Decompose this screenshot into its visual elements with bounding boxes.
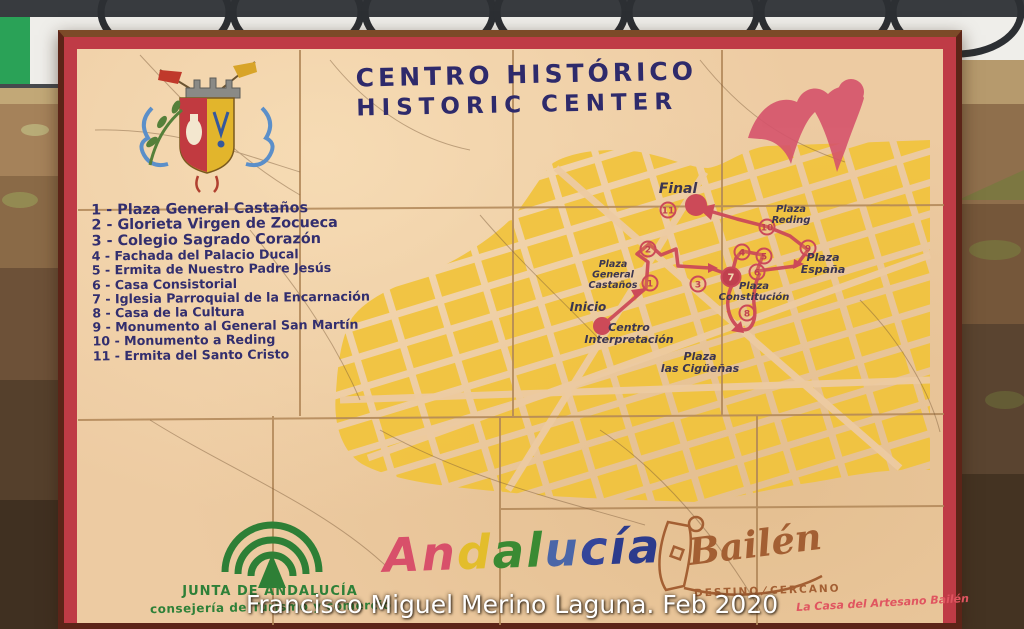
andalucia-letter: í [609,520,629,576]
legend-list: 1 - Plaza General Castaños2 - Glorieta V… [91,201,370,364]
andalucia-letter: d [456,525,494,581]
photo: 1234567891011 FinalPlazaRedingPlazaEspañ… [0,0,1024,629]
legend-item: 11 - Ermita del Santo Cristo [93,346,371,363]
sign-title: CENTRO HISTÓRICO HISTORIC CENTER [355,56,696,121]
andalucia-letter: l [525,523,545,579]
andalucia-letter: a [627,519,663,575]
green-bin [0,4,30,98]
title-spanish: CENTRO HISTÓRICO [355,56,696,92]
andalucia-letter: c [579,521,611,577]
andalucia-letter: u [543,522,580,578]
stone-wall-right [958,60,1024,629]
photo-caption: Francisco Miguel Merino Laguna. Feb 2020 [0,590,1024,619]
andalucia-letter: n [420,526,457,582]
andalucia-wordmark: Andalucía [382,519,662,584]
stone-wall-left [0,88,64,629]
andalucia-letter: a [492,524,528,580]
andalucia-letter: A [382,528,422,584]
